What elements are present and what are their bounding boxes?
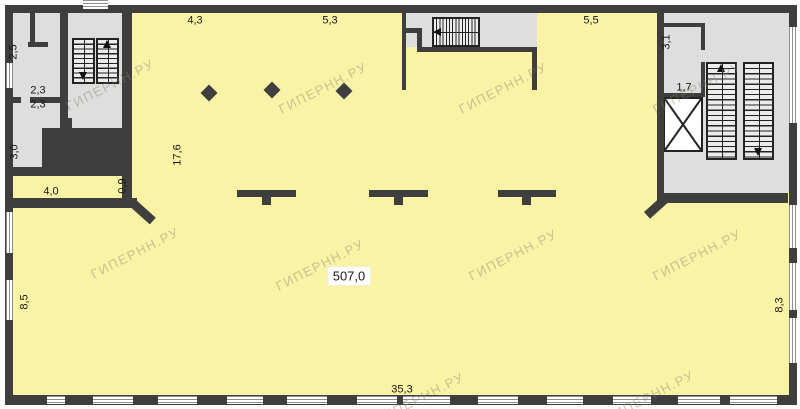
wall-t-stub-bar: [498, 190, 556, 197]
stair-up-arrow-icon: [103, 40, 111, 48]
wall-t-stub-stem: [522, 197, 531, 205]
stair-down-arrow-icon: [754, 148, 762, 156]
stair-axis: [759, 64, 760, 158]
staircase-right-flight-down: [743, 62, 774, 160]
dim-label-bottom-span: 35,3: [391, 385, 412, 396]
window: [730, 396, 777, 404]
window: [789, 27, 797, 123]
window: [478, 396, 518, 404]
dim-label-top-mid: 5,3: [322, 16, 337, 27]
wall-partition: [28, 42, 48, 47]
wall-top-stair-left: [402, 13, 406, 90]
dim-label-passage: 0,9: [118, 178, 129, 193]
window: [789, 205, 797, 248]
total-area-label: 507,0: [329, 268, 370, 285]
window: [83, 0, 108, 9]
dim-label-left-span: 8,5: [20, 294, 31, 309]
wall-t-stub-stem: [262, 197, 271, 205]
dim-label-top-right: 5,5: [583, 16, 598, 27]
window: [287, 396, 327, 404]
wall-elevator-stub: [62, 118, 72, 130]
floor-plan: ГИПЕРНН.РУ ГИПЕРНН.РУ ГИПЕРНН.РУ ГИПЕРНН…: [0, 0, 800, 409]
dim-label-top-left: 4,3: [187, 16, 202, 27]
window: [158, 396, 197, 404]
wall-corridor-bottom: [5, 198, 137, 208]
wall-corridor-top: [5, 167, 132, 176]
dim-label-right-span: 8,3: [775, 297, 786, 312]
window: [547, 396, 583, 404]
window: [6, 212, 13, 253]
window: [227, 396, 263, 404]
window: [6, 63, 13, 88]
wall-partition: [5, 97, 21, 103]
window: [357, 396, 397, 404]
dim-label-room-2-3-a: 2,3: [30, 86, 45, 97]
wall-partition: [701, 23, 705, 50]
window: [678, 396, 720, 404]
stair-down-arrow-icon: [79, 72, 87, 80]
wall-elevator-core: [42, 128, 132, 170]
wall-t-stub-bar: [369, 190, 428, 197]
dim-label-room-2-5: 2,5: [9, 44, 20, 59]
dim-label-room-3-0: 3,0: [10, 144, 21, 159]
wall-t-stub-stem: [394, 197, 403, 205]
wall-right-block-bottom: [662, 193, 788, 203]
wall-stairwell-separator: [60, 5, 68, 129]
dim-label-corridor: 4,0: [43, 187, 58, 198]
window: [6, 280, 13, 320]
dim-label-room-3-1: 3,1: [662, 34, 673, 49]
dim-label-room-2-3-b: 2,3: [30, 100, 45, 111]
window: [47, 396, 65, 404]
window: [789, 263, 797, 310]
stair-left-arrow-icon: [433, 28, 441, 36]
wall-t-stub-bar: [237, 190, 296, 197]
wall-partition: [664, 23, 705, 27]
wall-partition: [30, 9, 35, 45]
wall-top-stair-bottom: [417, 47, 537, 52]
window: [789, 318, 797, 363]
window: [93, 396, 133, 404]
dim-label-hall-depth: 17,6: [173, 144, 184, 165]
dim-label-room-1-7: 1,7: [676, 83, 691, 94]
